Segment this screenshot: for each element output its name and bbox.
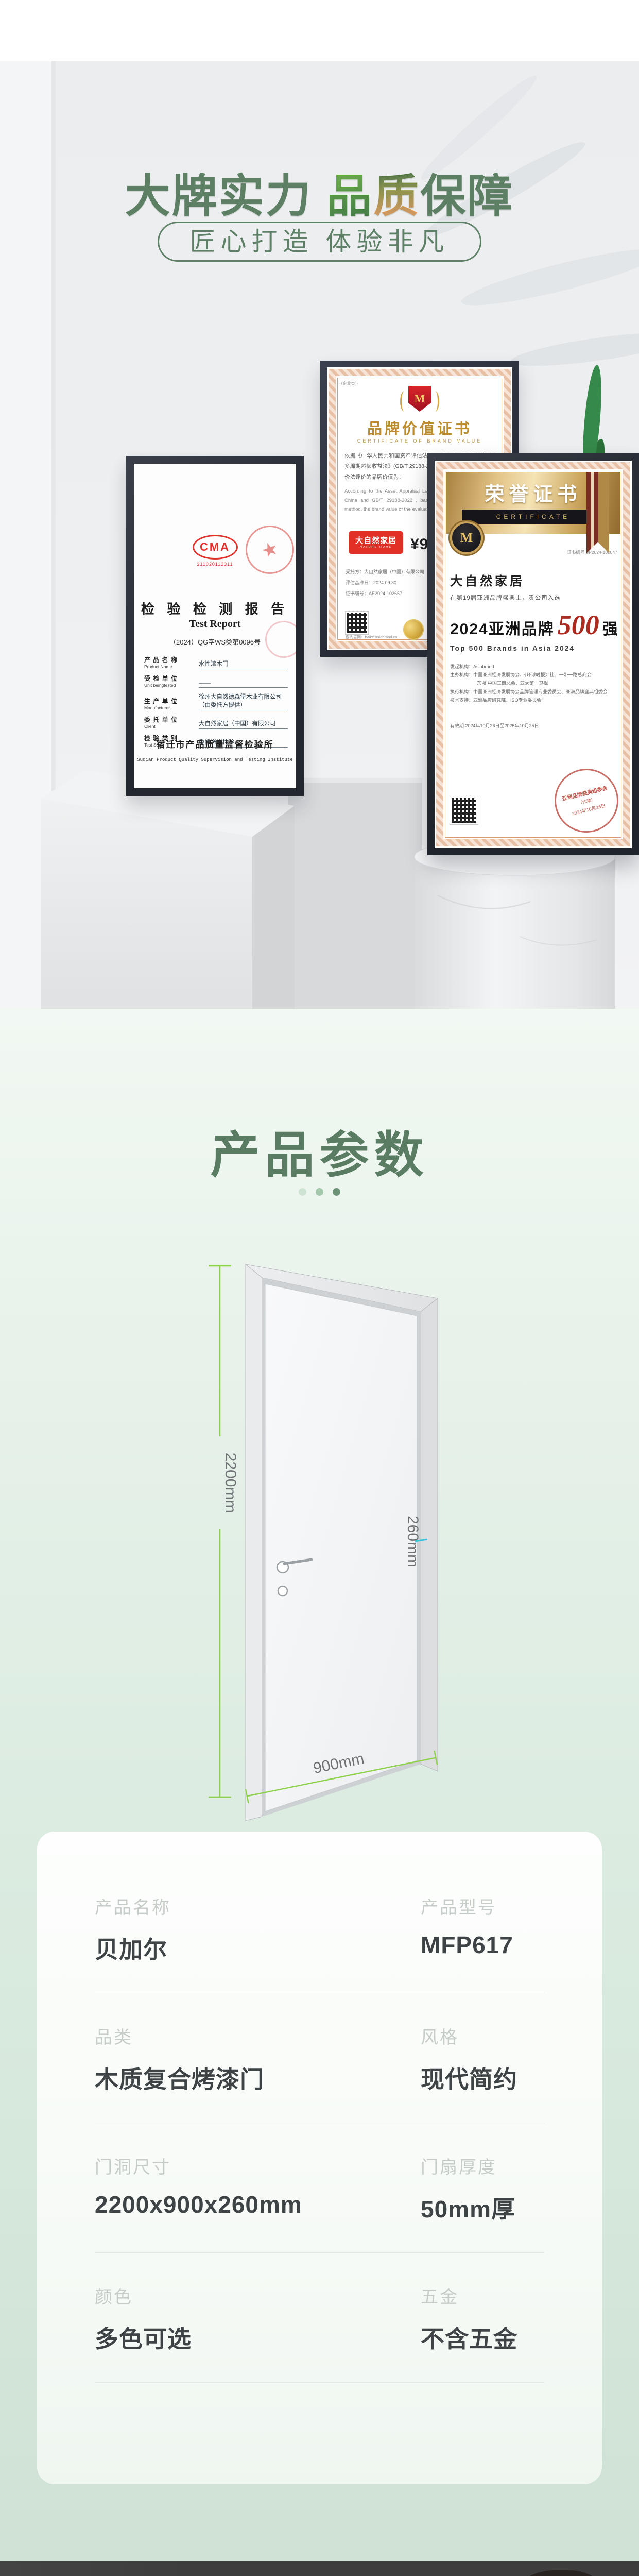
field-row: 委 托 单 位Client 大自然家居（中国）有限公司 [144, 715, 288, 729]
certificate-test-report: CMA 211020112311 检 验 检 测 报 告 Test Report… [126, 456, 304, 796]
meta-line: 受托方：大自然家居（中国）有限公司 [346, 568, 424, 575]
field-label-en: Product Name [144, 664, 196, 669]
spec-label: 风格 [421, 2023, 544, 2048]
meta-line: 执行机构：中国亚洲经济发展协会品牌管理专业委员会、亚洲品牌盛典组委会 [450, 688, 618, 696]
laurel-left-icon [400, 391, 408, 412]
meta-line: 发起机构：Asiabrand [450, 663, 618, 671]
spec-row: 颜色多色可选 五金不含五金 [95, 2253, 544, 2383]
stamp-date: 2024年10月26日 [571, 802, 606, 817]
door-leaf [265, 1284, 417, 1811]
hero-title-zhi: 质 [373, 171, 420, 222]
customer-service-photo [433, 2561, 639, 2576]
spec-row: 门洞尺寸2200x900x260mm 门扇厚度50mm厚 [95, 2123, 544, 2253]
honor-intro: 在第19届亚洲品牌盛典上，贵公司入选 [450, 594, 561, 602]
product-detail-page: 大牌实力 品质保障 匠心打造 体验非凡 CMA 211020112311 检 验… [0, 0, 639, 2576]
certificate-honor: 荣誉证书 CERTIFICATE M 证书编号:BP2024-100047 大自… [427, 453, 639, 855]
brand-value-tag: ·（企业类）· [339, 381, 358, 386]
ribbon-icon [586, 472, 609, 553]
brand-value-site: 查询官网：baike.asiabrand.cn [346, 634, 397, 640]
field-value: 大自然家居（中国）有限公司 [199, 719, 288, 729]
door-frame-right [421, 1298, 438, 1771]
brand-value-meta: 受托方：大自然家居（中国）有限公司 评估基准日：2024.09.30 证书编号：… [346, 568, 424, 601]
spec-value: 贝加尔 [95, 1931, 421, 1965]
brand-logo-en: NATURE HOME [349, 546, 403, 549]
qr-code-icon [346, 612, 368, 634]
field-label-cn: 生 产 单 位 [144, 697, 196, 705]
honor-red-stamp: 亚洲品牌盛典组委会 （代章） 2024年10月26日 [548, 762, 625, 839]
award-prefix: 2024亚洲品牌 [450, 616, 555, 639]
params-title: 产品参数 [0, 1115, 639, 1187]
test-report-org-cn: 宿迁市产品质量监督检验所 [134, 737, 296, 750]
pedestal-left-cube [41, 770, 295, 1009]
honor-meta: 发起机构：Asiabrand 主办机构：中国亚洲经济发展协会、《环球时报》社、一… [450, 663, 618, 704]
honor-award: 2024亚洲品牌 500 强 [450, 609, 619, 641]
award-suffix: 强 [602, 616, 619, 639]
dim-depth-label: 260mm [404, 1516, 421, 1567]
brand-value-title: 品牌价值证书 [327, 417, 512, 438]
spec-label: 门扇厚度 [421, 2153, 544, 2178]
field-label-en: Manufacturer [144, 705, 196, 710]
hero-section: 大牌实力 品质保障 匠心打造 体验非凡 CMA 211020112311 检 验… [0, 61, 639, 1009]
ambient-light [0, 2561, 185, 2576]
laurel-right-icon [431, 391, 439, 412]
medal-letter: M [460, 530, 473, 546]
dim-height-label: 2200mm [222, 1453, 239, 1513]
red-stamp-partial-icon [265, 621, 296, 658]
field-label-en: Client [144, 724, 196, 729]
brand-value-subtitle: CERTIFICATE OF BRAND VALUE [327, 438, 512, 444]
red-stamp-icon: ★ [239, 519, 296, 581]
spec-row: 产品名称贝加尔 产品型号MFP617 [95, 1863, 544, 1993]
spec-label: 产品名称 [95, 1893, 421, 1919]
field-row: 生 产 单 位Manufacturer 徐州大自然德森堡木业有限公司（由委托方提… [144, 692, 288, 710]
medal-letter: M [415, 392, 425, 405]
test-report-paper: CMA 211020112311 检 验 检 测 报 告 Test Report… [134, 464, 296, 788]
meta-line: 主办机构：中国亚洲经济发展协会、《环球时报》社、一带一路总商会 [450, 671, 618, 679]
spec-label: 产品型号 [421, 1893, 544, 1919]
pedestal-cylinder [415, 838, 615, 1009]
honor-paper: 荣誉证书 CERTIFICATE M 证书编号:BP2024-100047 大自… [435, 461, 632, 848]
field-value: —— [199, 680, 288, 688]
spec-value: 2200x900x260mm [95, 2191, 421, 2218]
meta-line: 证书编号：AE2024-102657 [346, 590, 424, 597]
award-number: 500 [558, 609, 599, 641]
door-diagram: 2200mm 260mm 900mm [154, 1247, 484, 1844]
honor-award-en: Top 500 Brands in Asia 2024 [450, 644, 575, 652]
honor-cert-number: 证书编号:BP2024-100047 [567, 549, 617, 555]
spec-label: 五金 [421, 2283, 544, 2308]
product-params-section: 产品参数 2200mm [0, 1009, 639, 2561]
spec-label: 门洞尺寸 [95, 2153, 421, 2178]
spec-value: 不含五金 [421, 2320, 544, 2354]
hero-title-right: 保障 [420, 171, 514, 222]
field-row: 受 检 单 位Unit beingtested —— [144, 674, 288, 688]
nature-home-logo: 大自然家居 NATURE HOME [349, 531, 403, 554]
dots-decoration [0, 1188, 639, 1198]
honor-subtitle: CERTIFICATE [462, 510, 605, 524]
spec-value: 50mm厚 [421, 2191, 544, 2225]
service-section: 金保姆服务 全国1000+实体门店支持 咨询下单 › 上门量尺 › [0, 2561, 639, 2576]
hero-title-pin: 品 [326, 171, 373, 222]
meta-line: 技术支持：亚洲品牌研究院、ISO专业委员会 [450, 696, 618, 704]
gold-seal-icon [403, 619, 424, 640]
honor-medal-icon: M [450, 521, 483, 554]
honor-brand: 大自然家居 [450, 571, 525, 589]
spec-label: 品类 [95, 2023, 421, 2048]
field-label-cn: 委 托 单 位 [144, 715, 196, 724]
spec-row: 品类木质复合烤漆门 风格现代简约 [95, 1993, 544, 2123]
spec-value: 多色可选 [95, 2320, 421, 2354]
field-row: 产 品 名 称Product Name 水性漆木门 [144, 655, 288, 669]
dim-height-line [209, 1266, 231, 1797]
field-label-cn: 产 品 名 称 [144, 655, 196, 664]
qr-code-icon [450, 796, 478, 824]
field-value: 水性漆木门 [199, 659, 288, 669]
door-frame-left [246, 1264, 262, 1821]
meta-line: 评估基准日：2024.09.30 [346, 579, 424, 586]
spec-value: 现代简约 [421, 2061, 544, 2095]
hero-title-left: 大牌实力 [125, 171, 326, 222]
field-value: 徐州大自然德森堡木业有限公司（由委托方提供） [199, 692, 288, 710]
spec-card: 产品名称贝加尔 产品型号MFP617 品类木质复合烤漆门 风格现代简约 门洞尺寸… [37, 1832, 602, 2484]
test-report-title: 检 验 检 测 报 告 [134, 599, 296, 618]
medal-icon: M [408, 386, 431, 412]
field-label-cn: 受 检 单 位 [144, 674, 196, 683]
stamp-star: ★ [258, 537, 282, 563]
brand-logo-cn: 大自然家居 [349, 535, 403, 546]
field-label-en: Unit beingtested [144, 683, 196, 688]
pedestal-back-block [288, 778, 422, 1009]
spec-label: 颜色 [95, 2283, 421, 2308]
honor-validity: 有效期:2024年10月26日至2025年10月25日 [450, 722, 539, 729]
cma-text: CMA [193, 535, 238, 560]
hero-subtitle-pill: 匠心打造 体验非凡 [158, 222, 482, 262]
hero-title: 大牌实力 品质保障 [0, 160, 639, 225]
spec-value: MFP617 [421, 1931, 544, 1959]
test-report-org-en: Suqian Product Quality Supervision and T… [134, 757, 296, 762]
spec-value: 木质复合烤漆门 [95, 2061, 421, 2095]
meta-line: 东盟·中国工商总会、亚太第一卫视 [450, 679, 618, 687]
